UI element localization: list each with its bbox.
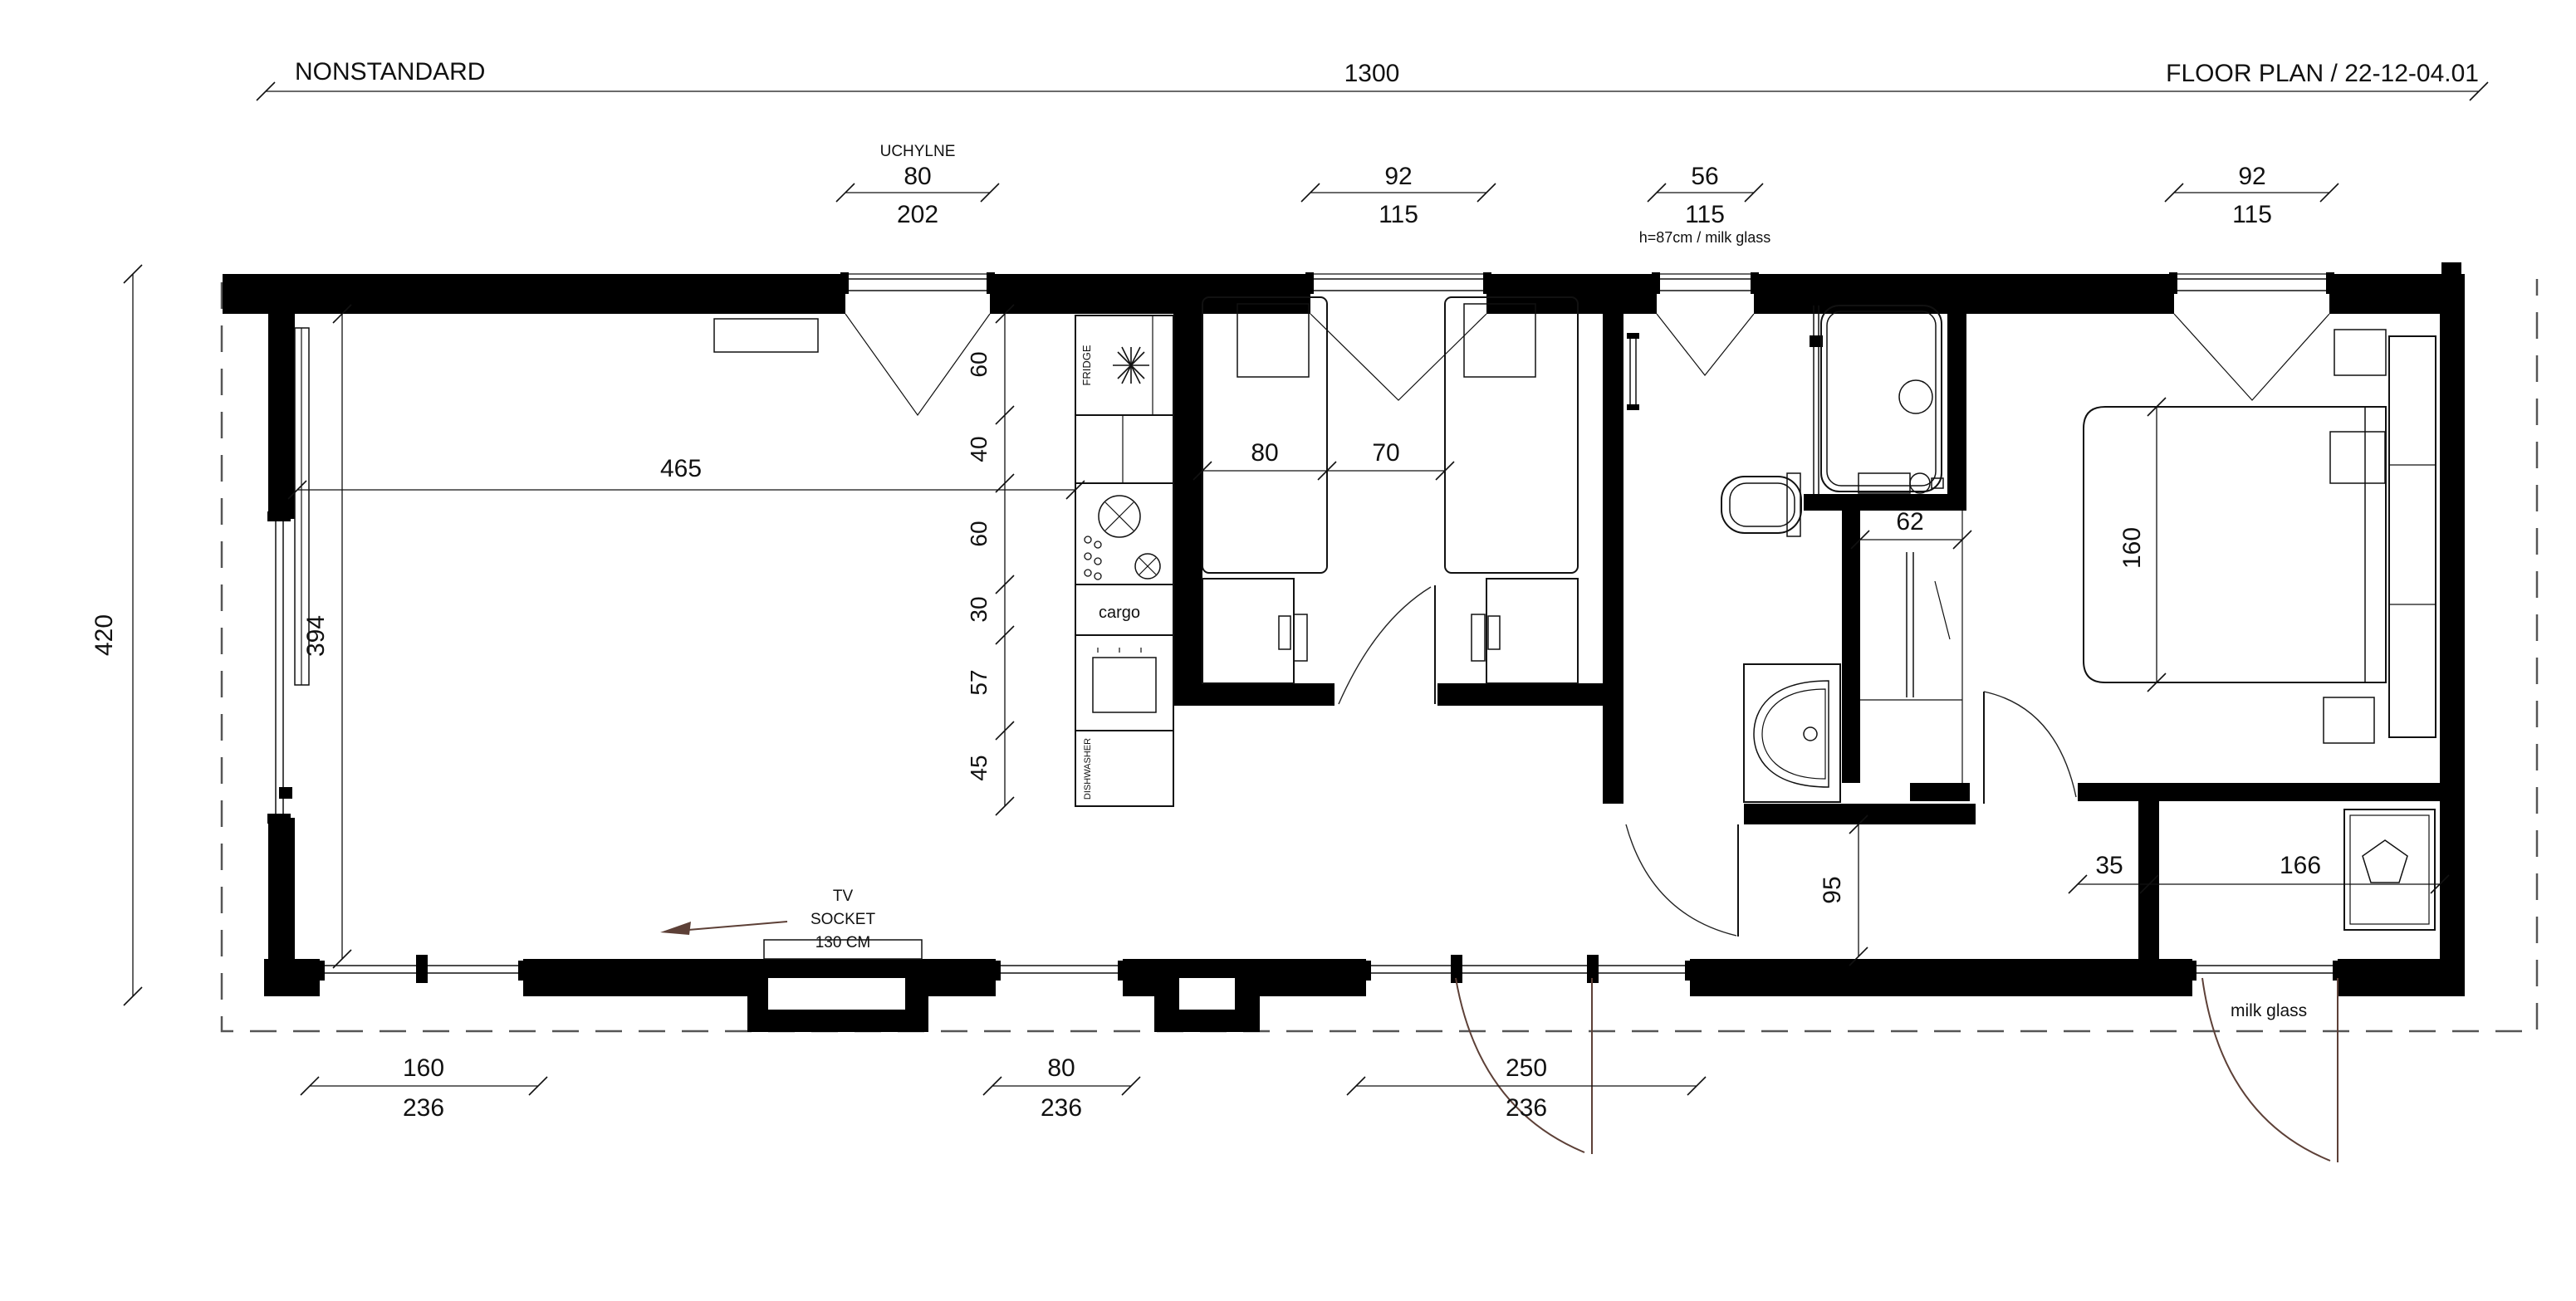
- left-glass-door: [267, 511, 292, 824]
- hob: [1075, 483, 1173, 584]
- dim-bed: 80: [1251, 439, 1278, 467]
- kids-bed-left-pillow: [1237, 304, 1309, 377]
- dim-bath-window: 56 115 h=87cm / milk glass: [1639, 163, 1771, 246]
- bedroom-door: [1984, 692, 2076, 804]
- dim-rough: 236: [1041, 1094, 1082, 1122]
- dim-window80: 80 236: [983, 1054, 1140, 1122]
- heater-pentagon-icon: [2363, 840, 2407, 883]
- shower-faucet: [1859, 473, 1910, 493]
- kids-bed-right-pillow: [1464, 304, 1535, 377]
- uchylne-label: UCHYLNE: [880, 143, 956, 160]
- kids-room: [1202, 297, 1578, 683]
- kids-bed-right: [1445, 297, 1578, 573]
- dim-rough: 236: [403, 1094, 444, 1122]
- dim-uchylne: UCHYLNE 80 202: [836, 143, 999, 228]
- wall-bath-bottom: [1744, 804, 1976, 824]
- interior-walls: [1173, 314, 2440, 959]
- overall-width-dim: 1300: [1344, 60, 1400, 87]
- kids-room-door: [1339, 585, 1435, 704]
- shower: [1810, 306, 1943, 494]
- nightstand-mid: [2330, 432, 2385, 483]
- wall-left-upper: [268, 314, 295, 519]
- wall-bath-bedroom: [1947, 314, 1966, 511]
- dim-rough: 202: [897, 201, 938, 228]
- wall-bottom-6: [1690, 959, 2192, 996]
- bottom-openings: milk glass: [315, 922, 2343, 1162]
- dim-35-166: 35 166: [2069, 852, 2449, 893]
- kids-chair-left: [1294, 614, 1307, 661]
- bathroom-sink: [1744, 664, 1840, 802]
- slide-arrowhead-icon: [660, 922, 691, 935]
- wall-bath-left: [1603, 314, 1623, 804]
- fireplace-niche-opening: [1179, 978, 1235, 1010]
- wall-top-2: [990, 274, 1310, 314]
- wall-kids-bottom-1: [1173, 683, 1335, 706]
- wall-shelf: [714, 319, 818, 352]
- dim-value: 160: [2118, 527, 2146, 569]
- dim-aisle: 70: [1372, 439, 1399, 467]
- wall-kids-bottom-2: [1437, 683, 1603, 706]
- dim-rough: 115: [1685, 201, 1725, 228]
- tv-label-line1: TV: [833, 888, 854, 905]
- wall-tech-left: [2138, 801, 2159, 959]
- window-bathroom: [1652, 272, 1759, 375]
- toilet: [1721, 473, 1801, 536]
- wall-top-4: [1754, 274, 2174, 314]
- dim-clear: 56: [1691, 163, 1718, 190]
- interior-doors: [1339, 585, 2076, 937]
- dim-seg: 60: [966, 351, 992, 377]
- dim-value: 420: [91, 614, 118, 656]
- dim-420: 420: [91, 265, 142, 1005]
- wall-bottom-2: [523, 959, 747, 996]
- wall-kids-left: [1173, 314, 1202, 706]
- exterior-walls: [223, 262, 2465, 1032]
- dim-clear: 160: [403, 1054, 444, 1082]
- dim-seg: 45: [966, 755, 992, 780]
- water-heater: [2344, 809, 2435, 930]
- hob-knobs: [1085, 536, 1101, 580]
- dim-rough: 115: [1379, 201, 1418, 228]
- fridge-snowflake-icon: [1113, 347, 1149, 384]
- dim-bedroom-window: 92 115: [2165, 163, 2338, 228]
- dim-kids-window: 92 115: [1301, 163, 1496, 228]
- dim-seg: 40: [966, 436, 992, 462]
- dim-clear: 80: [904, 163, 931, 190]
- dim-wall-offset: 35: [2095, 852, 2123, 879]
- wall-top-1: [223, 274, 845, 314]
- sink-faucet: [1804, 727, 1817, 741]
- floor-plan-sheet: NONSTANDARD 1300 FLOOR PLAN / 22-12-04.0…: [0, 0, 2576, 1301]
- wall-bottom-3: [928, 959, 996, 996]
- dim-394: 394: [302, 305, 351, 968]
- tv-niche-opening: [768, 978, 905, 1010]
- floor-plan-drawing: NONSTANDARD 1300 FLOOR PLAN / 22-12-04.0…: [0, 0, 2576, 1301]
- cargo-label: cargo: [1099, 604, 1140, 622]
- bathroom: [1627, 306, 1962, 802]
- dim-value: 62: [1896, 508, 1923, 536]
- wall-bottom-5: [1260, 959, 1366, 996]
- oven: [1075, 635, 1173, 731]
- dim-rough: 236: [1506, 1094, 1547, 1122]
- milk-glass-door: milk glass: [2187, 961, 2343, 1162]
- window-swing: [2174, 314, 2329, 400]
- sheet-title: FLOOR PLAN / 22-12-04.01: [2166, 60, 2479, 87]
- fridge-label: FRIDGE: [1080, 345, 1093, 385]
- title-block: NONSTANDARD 1300 FLOOR PLAN / 22-12-04.0…: [257, 58, 2488, 100]
- window-uchylne: [840, 272, 995, 415]
- dim-kids-80-70: 80 70: [1193, 439, 1454, 480]
- window-swing: [1310, 314, 1486, 400]
- wall-right: [2440, 274, 2465, 996]
- dim-seg: 60: [966, 521, 992, 546]
- kitchen: FRIDGE cargo DISHWASHER: [1075, 315, 1173, 806]
- wall-bottom-7: [2338, 959, 2465, 996]
- dim-slide-door: 160 236: [301, 1054, 547, 1122]
- bathroom-door: [1626, 824, 1738, 937]
- dim-value: 465: [660, 455, 702, 482]
- kids-cabinet-left: [1202, 579, 1294, 683]
- roof-overhang-outline: [222, 279, 2537, 1031]
- shower-drain: [1899, 380, 1932, 413]
- towel-radiator: [1627, 333, 1639, 410]
- wall-right-notch: [2441, 262, 2461, 276]
- wall-bedroom-bottom-1: [1910, 783, 1970, 801]
- dim-note: h=87cm / milk glass: [1639, 229, 1771, 246]
- kitchen-cabinet-40: [1075, 415, 1173, 483]
- dim-95: 95: [1819, 815, 1868, 966]
- wall-closet-left: [1842, 511, 1860, 783]
- window-swing: [1657, 314, 1754, 375]
- dim-rough: 115: [2232, 201, 2272, 228]
- tv-label-line2: SOCKET: [811, 911, 876, 928]
- door-mullion: [416, 955, 428, 983]
- living-room: TV SOCKET 130 CM: [295, 319, 922, 959]
- window-bedroom: [2169, 272, 2334, 400]
- nightstand-bottom: [2324, 697, 2374, 743]
- dishwasher-label: DISHWASHER: [1083, 738, 1093, 800]
- wall-bottom-1: [264, 959, 320, 996]
- dim-seg: 57: [966, 669, 992, 695]
- door-handle: [279, 787, 292, 799]
- dim-clear: 250: [1506, 1054, 1547, 1082]
- dim-clear: 92: [2238, 163, 2265, 190]
- dim-kitchen-chain: 60 40 60 30 57 45: [966, 305, 1014, 815]
- window-80: [991, 961, 1128, 981]
- dim-160-bed: 160: [2118, 398, 2166, 692]
- wall-shower-bottom: [1804, 494, 1966, 511]
- dim-seg: 30: [966, 596, 992, 622]
- wall-bedroom-bottom-2: [2078, 783, 2440, 801]
- dim-value: 95: [1819, 876, 1846, 903]
- nightstand-top: [2334, 330, 2386, 375]
- tv-label-line3: 130 CM: [815, 934, 871, 951]
- tech-room: [2344, 809, 2435, 930]
- kids-chair-right: [1472, 614, 1485, 661]
- wall-top-3: [1486, 274, 1657, 314]
- dim-62: 62: [1851, 508, 1971, 549]
- bedroom-wardrobe: [2389, 336, 2436, 737]
- dim-clear: 92: [1384, 163, 1412, 190]
- dim-clear: 80: [1047, 1054, 1075, 1082]
- project-label: NONSTANDARD: [295, 58, 485, 86]
- milk-glass-note: milk glass: [2231, 1001, 2307, 1020]
- dim-value: 394: [302, 615, 330, 657]
- dim-entry-door: 250 236: [1347, 1054, 1706, 1122]
- dim-tech-width: 166: [2280, 852, 2321, 879]
- closet-62: [1860, 511, 1962, 783]
- tv-socket-label: TV SOCKET 130 CM: [811, 888, 876, 951]
